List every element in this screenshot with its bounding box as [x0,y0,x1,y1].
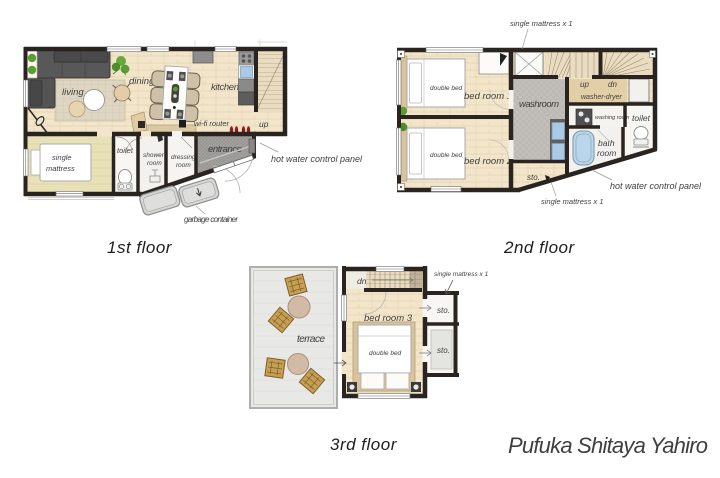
svg-text:bed room 1: bed room 1 [464,91,512,102]
svg-text:double bed: double bed [430,152,463,159]
svg-text:terrace: terrace [297,334,325,345]
svg-text:hot water control panel: hot water control panel [610,181,702,191]
svg-text:Pufuka Shitaya Yahiro: Pufuka Shitaya Yahiro [508,433,708,458]
svg-text:3rd floor: 3rd floor [330,435,398,454]
svg-text:washer-dryer: washer-dryer [581,94,622,101]
svg-text:up: up [259,119,269,129]
svg-text:single: single [52,153,72,162]
svg-text:2nd floor: 2nd floor [503,238,575,257]
svg-text:sto.: sto. [527,173,540,182]
svg-text:living: living [62,87,84,98]
svg-text:entrance: entrance [208,144,242,155]
svg-text:kitchen: kitchen [211,82,239,93]
svg-text:double bed: double bed [369,350,402,357]
svg-text:bed room 2: bed room 2 [464,156,513,167]
svg-text:shower: shower [143,152,165,159]
svg-text:mattress: mattress [46,164,75,173]
svg-text:dressing: dressing [171,154,196,161]
svg-text:double bed: double bed [430,85,463,92]
svg-text:up: up [580,80,589,89]
svg-text:single mattress x 1: single mattress x 1 [434,271,489,278]
svg-text:room: room [147,160,162,167]
svg-text:wi-fi router: wi-fi router [194,119,230,128]
svg-text:1st floor: 1st floor [107,238,173,257]
svg-text:single mattress x 1: single mattress x 1 [541,197,604,206]
svg-text:dining: dining [129,76,155,87]
svg-text:sto.: sto. [437,306,450,315]
svg-text:dn: dn [608,80,617,89]
svg-text:dn: dn [357,276,367,286]
svg-text:sto.: sto. [437,346,450,355]
svg-text:single mattress x 1: single mattress x 1 [510,19,573,28]
svg-text:toilet: toilet [632,113,651,123]
svg-text:bath: bath [598,138,615,148]
svg-text:garbage container: garbage container [184,215,238,224]
svg-text:room: room [176,162,191,169]
svg-text:room: room [597,148,616,158]
svg-text:washroom: washroom [519,99,559,110]
svg-text:hot water control panel: hot water control panel [271,154,363,164]
